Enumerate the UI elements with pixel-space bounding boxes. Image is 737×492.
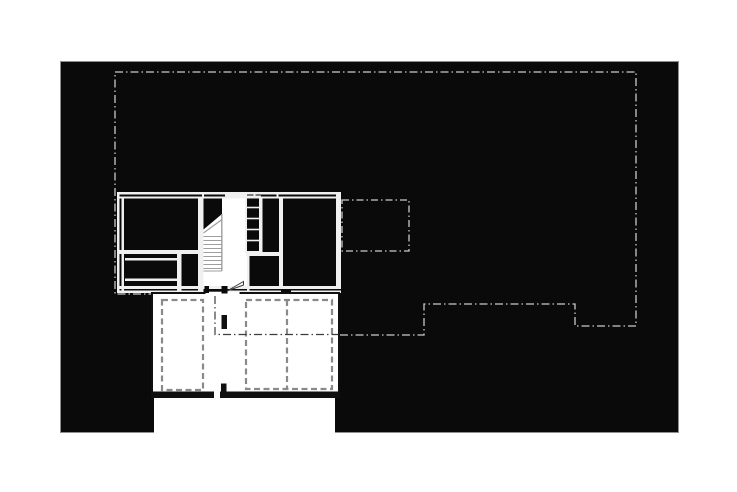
wall-tick <box>202 192 204 199</box>
south-wall-outer <box>117 286 341 289</box>
storage-counter-line <box>125 258 182 261</box>
window-infill <box>225 192 247 199</box>
storage-divider-line <box>125 279 182 282</box>
column-post <box>222 315 228 329</box>
living-room-south-wall <box>117 250 203 254</box>
wall-tick <box>254 192 256 199</box>
drawing-page <box>0 0 737 492</box>
east-room-west-wall <box>279 197 283 289</box>
garage-south-wall <box>152 392 339 398</box>
column-post <box>221 384 227 395</box>
floor-plan-drawing <box>0 0 737 492</box>
door-pivot-post <box>222 286 228 294</box>
stair-west-wall <box>198 197 204 294</box>
storage-east-wall <box>177 250 182 293</box>
lower-mid-room-west-wall <box>247 256 250 291</box>
wall-tick <box>277 192 279 199</box>
garage-door-gap <box>214 391 220 400</box>
east-wall <box>336 192 341 288</box>
west-wall-inner <box>122 197 125 294</box>
west-wall-outer <box>117 192 120 293</box>
annex-dashed-outline <box>342 200 409 251</box>
shelf-unit-outline <box>246 197 260 253</box>
door-jamb <box>205 286 210 293</box>
